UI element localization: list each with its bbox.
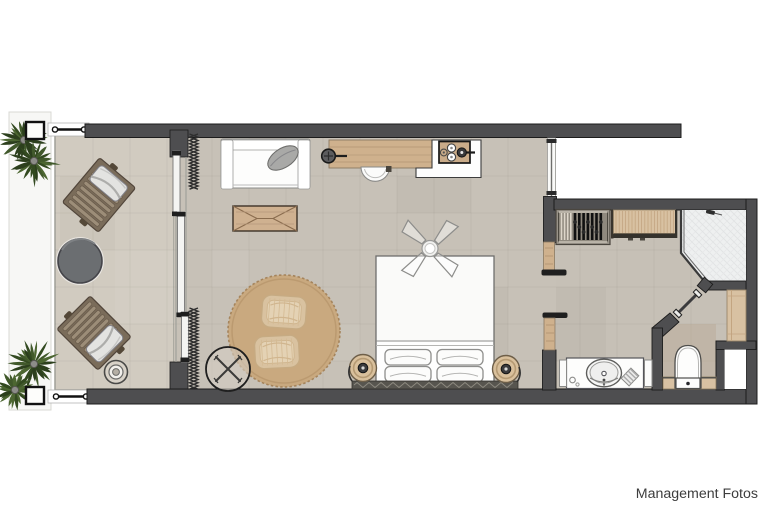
svg-text:Management Fotos: Management Fotos — [636, 486, 758, 502]
